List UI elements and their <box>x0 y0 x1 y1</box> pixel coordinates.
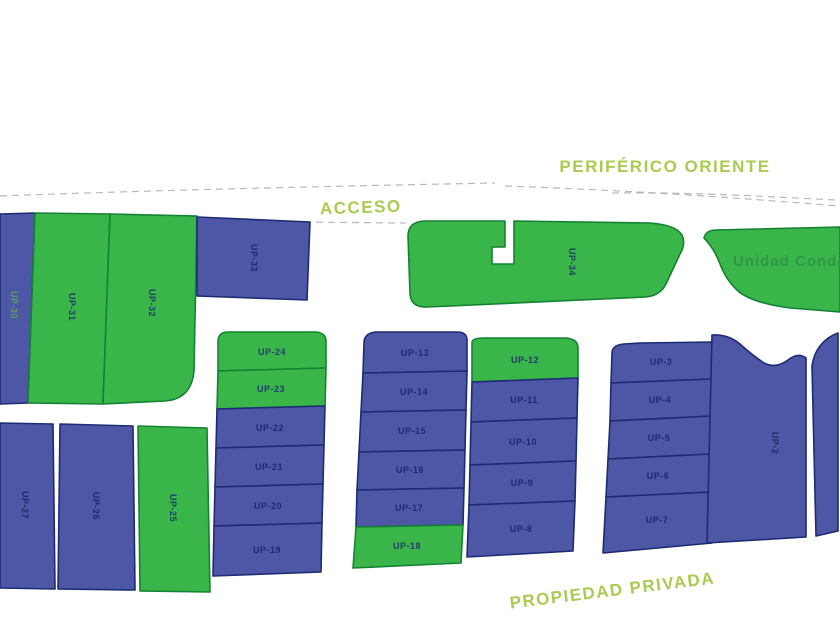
plot-up-34 <box>408 221 684 307</box>
label-up-22: UP-22 <box>256 423 284 433</box>
label-up-33: UP-33 <box>249 244 259 272</box>
plot-right-edge-strip <box>812 333 838 536</box>
plot-up-2 <box>707 335 806 543</box>
label-up-17: UP-17 <box>395 503 423 513</box>
label-up-9: UP-9 <box>511 478 534 488</box>
label-up-11: UP-11 <box>510 395 538 405</box>
label-up-23: UP-23 <box>257 384 285 394</box>
road-label-acceso: ACCESO <box>320 197 402 219</box>
label-up-3: UP-3 <box>650 357 673 367</box>
label-up-34: UP-34 <box>567 248 577 276</box>
label-up-30: UP-30 <box>9 291 19 319</box>
label-up-6: UP-6 <box>647 471 670 481</box>
label-up-15: UP-15 <box>398 426 426 436</box>
label-up-19: UP-19 <box>253 545 281 555</box>
label-up-21: UP-21 <box>255 462 283 472</box>
label-up-32: UP-32 <box>147 289 157 317</box>
label-up-2: UP-2 <box>770 432 780 455</box>
label-up-31: UP-31 <box>67 293 77 321</box>
label-up-25: UP-25 <box>168 494 178 522</box>
label-up-10: UP-10 <box>509 437 537 447</box>
label-up-18: UP-18 <box>393 541 421 551</box>
label-up-16: UP-16 <box>396 465 424 475</box>
site-plan-map: UP-30 UP-31 UP-32 UP-33 UP-34 UP-24 UP-2… <box>0 0 840 630</box>
label-up-24: UP-24 <box>258 347 286 357</box>
label-up-20: UP-20 <box>254 501 282 511</box>
label-up-26: UP-26 <box>91 492 101 520</box>
label-up-14: UP-14 <box>400 387 428 397</box>
road-label-periferico: PERIFÉRICO ORIENTE <box>559 157 770 176</box>
label-up-12: UP-12 <box>511 355 539 365</box>
label-up-8: UP-8 <box>510 524 533 534</box>
label-up-27: UP-27 <box>20 491 30 519</box>
label-up-5: UP-5 <box>648 433 671 443</box>
condo-area-label: Unidad Condo <box>733 253 840 270</box>
road-label-propiedad-privada: PROPIEDAD PRIVADA <box>509 569 716 613</box>
label-up-13: UP-13 <box>401 348 429 358</box>
label-up-4: UP-4 <box>649 395 672 405</box>
site-plan-svg: UP-30 UP-31 UP-32 UP-33 UP-34 UP-24 UP-2… <box>0 0 840 630</box>
label-up-7: UP-7 <box>646 515 669 525</box>
